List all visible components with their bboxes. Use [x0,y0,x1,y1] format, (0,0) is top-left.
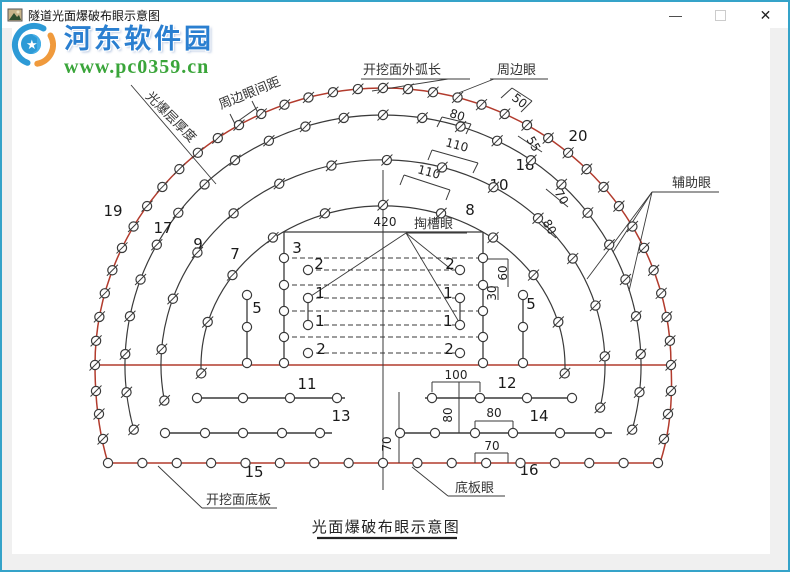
diagram-canvas [12,28,770,554]
svg-text:★: ★ [26,38,38,53]
window-controls: — ✕ [653,2,788,28]
close-button[interactable]: ✕ [743,2,788,28]
app-window: 隧道光面爆破布眼示意图 — ✕ 开挖面外弧长周边眼辅助眼掏槽眼开挖面底板底板眼周… [0,0,790,572]
minimize-button[interactable]: — [653,2,698,28]
maximize-button[interactable] [698,2,743,28]
watermark: ★ 河东软件园 www.pc0359.cn [6,17,214,79]
maximize-icon [715,10,726,21]
watermark-site-url: www.pc0359.cn [64,56,214,79]
watermark-logo-icon: ★ [6,17,60,73]
watermark-site-name: 河东软件园 [64,17,214,56]
